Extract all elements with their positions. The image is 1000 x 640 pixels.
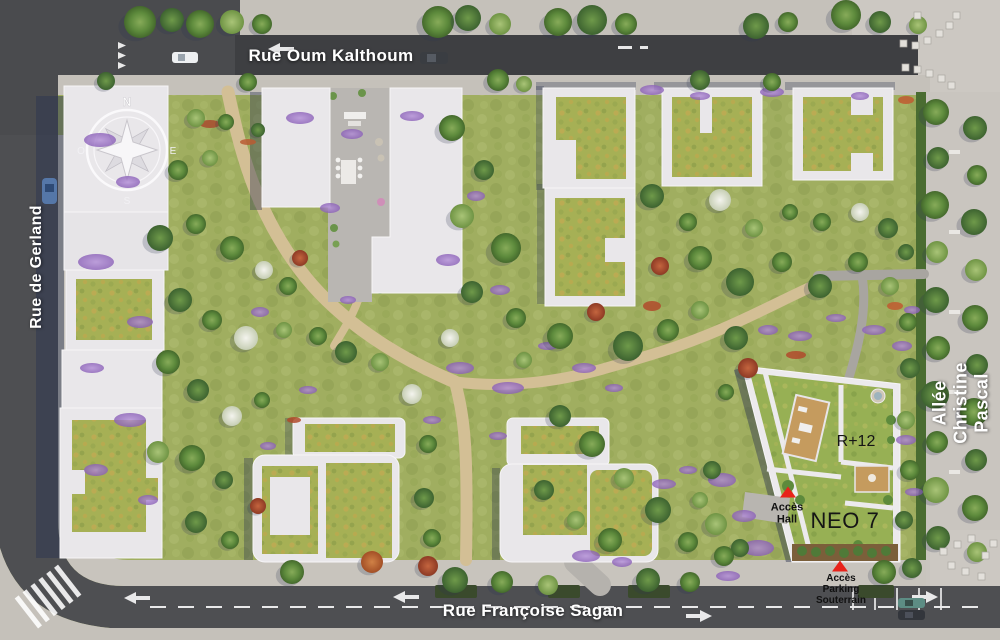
tree <box>254 392 270 408</box>
tree <box>679 213 697 231</box>
plaza-block <box>962 568 969 575</box>
plaza-block <box>954 541 961 548</box>
flower-patch <box>423 416 441 424</box>
tree <box>185 511 207 533</box>
flower-patch <box>612 557 632 567</box>
plaza-block <box>938 75 945 82</box>
tree <box>613 331 643 361</box>
car <box>42 178 57 204</box>
tree <box>220 236 244 260</box>
flower-patch <box>489 432 507 440</box>
tree <box>534 480 554 500</box>
tree <box>678 532 698 552</box>
tree <box>763 73 781 91</box>
tree <box>418 556 438 576</box>
flower-patch <box>492 382 524 394</box>
tree <box>813 213 831 231</box>
building-ne-3 <box>793 88 893 180</box>
tree <box>489 13 511 35</box>
flower-patch <box>572 550 600 562</box>
plaza-block <box>902 64 909 71</box>
tree <box>361 551 383 573</box>
tree <box>691 301 709 319</box>
tree <box>442 567 468 593</box>
tree <box>215 471 233 489</box>
building-west-3 <box>62 350 162 408</box>
flower-patch <box>467 191 485 201</box>
tree <box>220 10 244 34</box>
flower-patch <box>572 363 596 373</box>
flower-patch <box>400 111 424 121</box>
tree <box>335 341 357 363</box>
tree <box>640 184 664 208</box>
tree <box>587 303 605 321</box>
tree <box>186 10 214 38</box>
tree <box>692 492 708 508</box>
flower-patch <box>826 314 846 322</box>
tree <box>718 384 734 400</box>
car <box>420 52 448 64</box>
flower-patch <box>340 296 356 304</box>
tree <box>869 11 891 33</box>
building-north-a <box>262 88 330 207</box>
tree <box>615 13 637 35</box>
building-west-green-1 <box>66 270 164 350</box>
tree <box>423 529 441 547</box>
tree <box>202 310 222 330</box>
tree <box>598 528 622 552</box>
plaza-block <box>953 12 960 19</box>
site-plan: N E S O Rue Oum Kalthoum Rue de Gerland … <box>0 0 1000 640</box>
flower-patch <box>299 386 317 394</box>
tree <box>186 214 206 234</box>
tree <box>156 350 180 374</box>
tree <box>962 305 988 331</box>
tree <box>897 411 915 429</box>
flower-patch <box>436 254 460 266</box>
hall-access-marker-icon <box>780 487 796 498</box>
tree <box>547 323 573 349</box>
tree <box>516 76 532 92</box>
tree <box>124 6 156 38</box>
road-rue-oum-kalthoum <box>235 35 918 75</box>
flower-patch <box>851 92 869 100</box>
tree <box>455 5 481 31</box>
tree <box>848 252 868 272</box>
plaza-block <box>940 548 947 555</box>
flower-patch <box>732 510 756 522</box>
tree <box>187 109 205 127</box>
flower-patch <box>892 341 912 351</box>
flower-patch <box>287 417 301 423</box>
tree <box>97 72 115 90</box>
tree <box>636 568 660 592</box>
tree <box>461 281 483 303</box>
tree <box>147 225 173 251</box>
flower-patch <box>251 307 269 317</box>
tree <box>614 468 634 488</box>
flower-patch <box>286 112 314 124</box>
tree <box>831 0 861 30</box>
flower-patch <box>80 363 104 373</box>
tree <box>738 358 758 378</box>
building-ne-1 <box>543 88 635 188</box>
tree <box>239 73 257 91</box>
tree <box>923 287 949 313</box>
tree <box>250 498 266 514</box>
flower-patch <box>138 495 158 505</box>
plaza-block <box>936 30 943 37</box>
tree <box>966 354 988 376</box>
tree <box>645 497 671 523</box>
tree <box>579 431 605 457</box>
tree <box>474 160 494 180</box>
tree <box>726 268 754 296</box>
tree <box>222 406 242 426</box>
tree <box>921 381 949 409</box>
flower-patch <box>84 133 116 147</box>
tree <box>491 233 521 263</box>
tree <box>487 69 509 91</box>
tree <box>921 191 949 219</box>
tree <box>690 70 710 90</box>
flower-patch <box>341 129 363 139</box>
tree <box>160 8 184 32</box>
building-west-green-2 <box>60 408 162 558</box>
building-ne-2 <box>662 88 762 186</box>
flower-patch <box>84 464 108 476</box>
tree <box>960 398 988 426</box>
flower-patch <box>904 306 920 314</box>
tree <box>187 379 209 401</box>
tree <box>688 246 712 270</box>
tree <box>491 571 513 593</box>
tree <box>506 308 526 328</box>
flower-patch <box>640 85 664 95</box>
tree <box>923 99 949 125</box>
tree <box>743 13 769 39</box>
tree <box>567 511 585 529</box>
parking-access-marker-icon <box>832 561 848 572</box>
tree <box>549 405 571 427</box>
tree <box>703 461 721 479</box>
tree <box>544 8 572 36</box>
tree <box>705 513 727 535</box>
tree <box>714 546 734 566</box>
tree <box>965 449 987 471</box>
tree <box>963 116 987 140</box>
tree <box>276 322 292 338</box>
compass-letter-south: S <box>124 196 131 207</box>
tree <box>179 445 205 471</box>
tree <box>147 441 169 463</box>
tree <box>218 114 234 130</box>
plaza-block <box>982 552 989 559</box>
flower-patch <box>887 302 903 310</box>
tree <box>900 460 920 480</box>
compass-letter-north: N <box>123 95 132 109</box>
tree <box>651 257 669 275</box>
tree <box>709 189 731 211</box>
tree <box>255 261 273 279</box>
car <box>172 52 198 63</box>
plaza-block <box>924 37 931 44</box>
tree <box>450 204 474 228</box>
tree <box>371 353 389 371</box>
flower-patch <box>679 466 697 474</box>
tree <box>168 288 192 312</box>
flower-patch <box>127 316 153 328</box>
tree <box>927 147 949 169</box>
tree <box>439 115 465 141</box>
flower-patch <box>446 362 474 374</box>
tree <box>724 326 748 350</box>
tree <box>745 219 763 237</box>
flower-patch <box>490 285 510 295</box>
plaza-block <box>990 540 997 547</box>
tree <box>923 477 949 503</box>
tree <box>680 572 700 592</box>
flower-patch <box>114 413 146 427</box>
flower-patch <box>240 139 256 145</box>
compass-letter-west: O <box>77 146 85 157</box>
bottom-sidewalk <box>0 628 1000 640</box>
tree <box>878 218 898 238</box>
flower-patch <box>786 351 806 359</box>
tree <box>221 531 239 549</box>
car <box>898 598 925 608</box>
tree <box>772 252 792 272</box>
plaza-block <box>914 66 921 73</box>
tree <box>895 511 913 529</box>
tree <box>898 244 914 260</box>
tree <box>778 12 798 32</box>
flower-patch <box>652 479 676 489</box>
tree <box>899 313 917 331</box>
tree <box>202 150 218 166</box>
compass-letter-east: E <box>170 146 177 157</box>
tree <box>251 123 265 137</box>
tree <box>851 203 869 221</box>
tree <box>900 358 920 378</box>
plaza-block <box>946 22 953 29</box>
tree <box>926 336 950 360</box>
plaza-block <box>948 82 955 89</box>
tree <box>234 326 258 350</box>
tree <box>309 327 327 345</box>
flower-patch <box>78 254 114 270</box>
tree <box>538 575 558 595</box>
flower-patch <box>605 384 623 392</box>
flower-patch <box>758 325 778 335</box>
car <box>898 610 925 620</box>
plaza-block <box>978 573 985 580</box>
flower-patch <box>260 442 276 450</box>
building-ne-4 <box>545 188 635 306</box>
plaza-block <box>968 535 975 542</box>
tree <box>808 274 832 298</box>
plaza-block <box>912 42 919 49</box>
tree <box>252 14 272 34</box>
tree <box>967 165 987 185</box>
flower-patch <box>320 203 340 213</box>
tree <box>926 431 948 453</box>
plaza-block <box>926 70 933 77</box>
flower-patch <box>896 435 916 445</box>
tree <box>962 495 988 521</box>
plaza-block <box>948 562 955 569</box>
tree <box>782 204 798 220</box>
tree <box>902 558 922 578</box>
tree <box>402 384 422 404</box>
tree <box>965 259 987 281</box>
plaza-block <box>914 12 921 19</box>
tree <box>926 526 950 550</box>
tree <box>280 560 304 584</box>
flower-patch <box>690 92 710 100</box>
tree <box>926 241 948 263</box>
tree <box>422 6 454 38</box>
site-plan-canvas: N E S O <box>0 0 1000 640</box>
flower-patch <box>862 325 886 335</box>
tree <box>961 209 987 235</box>
tree <box>441 329 459 347</box>
tree <box>292 250 308 266</box>
tree <box>657 319 679 341</box>
tree <box>414 488 434 508</box>
tree <box>872 560 896 584</box>
tree <box>168 160 188 180</box>
flower-patch <box>898 96 914 104</box>
flower-patch <box>116 176 140 188</box>
tree <box>419 435 437 453</box>
tree <box>516 352 532 368</box>
plaza-block <box>900 40 907 47</box>
flower-patch <box>643 301 661 311</box>
flower-patch <box>716 571 740 581</box>
tree <box>577 5 607 35</box>
flower-patch <box>788 331 812 341</box>
tree <box>279 277 297 295</box>
tree <box>881 277 899 295</box>
